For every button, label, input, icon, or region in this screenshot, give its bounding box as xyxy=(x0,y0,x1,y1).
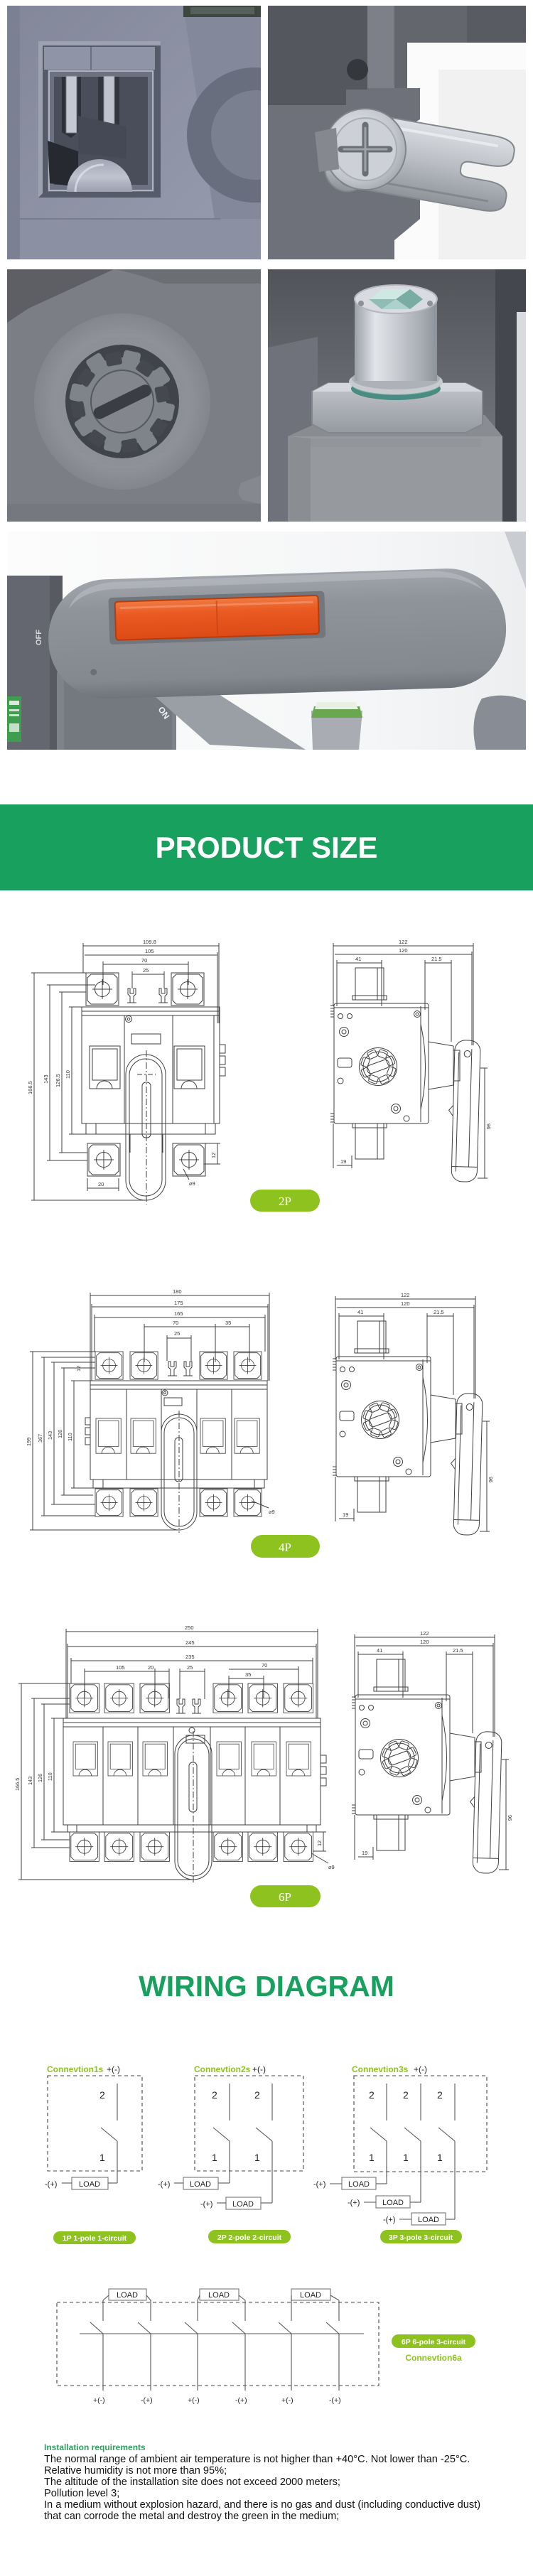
svg-text:35: 35 xyxy=(225,1320,231,1326)
svg-text:25: 25 xyxy=(187,1664,193,1671)
svg-text:2P: 2P xyxy=(279,1195,291,1208)
svg-text:Connevtion6a: Connevtion6a xyxy=(405,2353,462,2363)
svg-text:LOAD: LOAD xyxy=(348,2180,370,2189)
svg-text:LOAD: LOAD xyxy=(382,2199,404,2207)
svg-text:175: 175 xyxy=(174,1300,183,1306)
svg-text:-(+): -(+) xyxy=(383,2216,395,2224)
svg-text:6P 6-pole 3-circuit: 6P 6-pole 3-circuit xyxy=(402,2338,466,2346)
svg-text:-(+): -(+) xyxy=(158,2180,170,2189)
svg-text:6P: 6P xyxy=(279,1890,291,1904)
svg-text:35: 35 xyxy=(245,1671,251,1678)
svg-text:143: 143 xyxy=(47,1431,53,1440)
svg-text:1: 1 xyxy=(254,2152,260,2163)
svg-text:143: 143 xyxy=(27,1777,33,1785)
svg-text:20: 20 xyxy=(148,1664,154,1671)
svg-text:110: 110 xyxy=(65,1070,71,1079)
svg-text:143: 143 xyxy=(43,1074,49,1084)
svg-text:199: 199 xyxy=(26,1438,32,1446)
svg-text:Connevtion1s: Connevtion1s xyxy=(47,2064,104,2074)
svg-text:LOAD: LOAD xyxy=(117,2291,138,2300)
svg-text:245: 245 xyxy=(185,1639,195,1646)
svg-text:-(+): -(+) xyxy=(45,2180,57,2189)
svg-text:+(-): +(-) xyxy=(281,2396,294,2405)
svg-text:-(+): -(+) xyxy=(200,2200,212,2209)
svg-text:235: 235 xyxy=(185,1654,195,1660)
svg-text:LOAD: LOAD xyxy=(208,2291,230,2300)
svg-text:25: 25 xyxy=(143,967,149,974)
svg-text:70: 70 xyxy=(141,957,147,964)
svg-text:1P 1-pole 1-circuit: 1P 1-pole 1-circuit xyxy=(63,2234,127,2243)
svg-text:3P 3-pole 3-circuit: 3P 3-pole 3-circuit xyxy=(389,2233,453,2242)
svg-text:⌀9: ⌀9 xyxy=(189,1180,195,1187)
svg-text:1: 1 xyxy=(369,2152,375,2163)
svg-text:LOAD: LOAD xyxy=(232,2200,254,2209)
svg-text:LOAD: LOAD xyxy=(300,2291,321,2300)
svg-text:Connevtion2s: Connevtion2s xyxy=(194,2064,251,2074)
svg-text:166.5: 166.5 xyxy=(27,1081,33,1094)
svg-text:+(-): +(-) xyxy=(414,2064,427,2074)
svg-text:12: 12 xyxy=(316,1841,323,1846)
svg-text:4P: 4P xyxy=(279,1541,291,1554)
svg-text:⌀9: ⌀9 xyxy=(328,1864,335,1870)
svg-text:2: 2 xyxy=(437,2089,443,2101)
svg-text:LOAD: LOAD xyxy=(79,2180,100,2189)
svg-text:167: 167 xyxy=(37,1434,43,1443)
svg-text:+(-): +(-) xyxy=(252,2064,266,2074)
svg-text:⌀9: ⌀9 xyxy=(269,1509,275,1515)
svg-text:-(+): -(+) xyxy=(141,2396,153,2405)
svg-text:12: 12 xyxy=(75,1366,82,1371)
svg-text:-(+): -(+) xyxy=(235,2396,247,2405)
svg-text:105: 105 xyxy=(145,948,154,954)
svg-text:-(+): -(+) xyxy=(329,2396,341,2405)
svg-text:109.8: 109.8 xyxy=(143,939,156,945)
svg-text:110: 110 xyxy=(67,1433,73,1441)
svg-text:2: 2 xyxy=(99,2089,105,2101)
svg-text:20: 20 xyxy=(98,1181,104,1187)
svg-text:2: 2 xyxy=(403,2089,409,2101)
svg-text:1: 1 xyxy=(403,2152,409,2163)
svg-text:1: 1 xyxy=(212,2152,217,2163)
svg-text:+(-): +(-) xyxy=(188,2396,200,2405)
svg-text:2P 2-pole 2-circuit: 2P 2-pole 2-circuit xyxy=(217,2233,282,2242)
svg-text:2: 2 xyxy=(369,2089,375,2101)
svg-text:-(+): -(+) xyxy=(313,2180,325,2189)
svg-text:25: 25 xyxy=(174,1330,180,1337)
svg-text:126: 126 xyxy=(57,1430,63,1438)
svg-text:1: 1 xyxy=(99,2152,105,2163)
svg-text:180: 180 xyxy=(173,1288,182,1295)
svg-text:250: 250 xyxy=(185,1624,194,1631)
svg-text:110: 110 xyxy=(47,1772,53,1781)
svg-text:70: 70 xyxy=(173,1320,178,1326)
svg-text:Connevtion3s: Connevtion3s xyxy=(352,2064,409,2074)
svg-text:LOAD: LOAD xyxy=(190,2180,211,2189)
svg-text:LOAD: LOAD xyxy=(418,2216,439,2224)
svg-text:+(-): +(-) xyxy=(107,2064,120,2074)
svg-text:12: 12 xyxy=(210,1153,217,1158)
svg-text:70: 70 xyxy=(262,1662,267,1669)
svg-text:2: 2 xyxy=(254,2089,260,2101)
svg-text:2: 2 xyxy=(212,2089,217,2101)
svg-text:126.5: 126.5 xyxy=(55,1074,61,1087)
svg-text:+(-): +(-) xyxy=(93,2396,105,2405)
svg-text:165: 165 xyxy=(174,1310,183,1317)
svg-text:126: 126 xyxy=(37,1774,43,1782)
svg-text:1: 1 xyxy=(437,2152,443,2163)
svg-text:-(+): -(+) xyxy=(348,2199,360,2207)
svg-text:166.5: 166.5 xyxy=(14,1778,21,1791)
svg-text:105: 105 xyxy=(116,1664,125,1671)
